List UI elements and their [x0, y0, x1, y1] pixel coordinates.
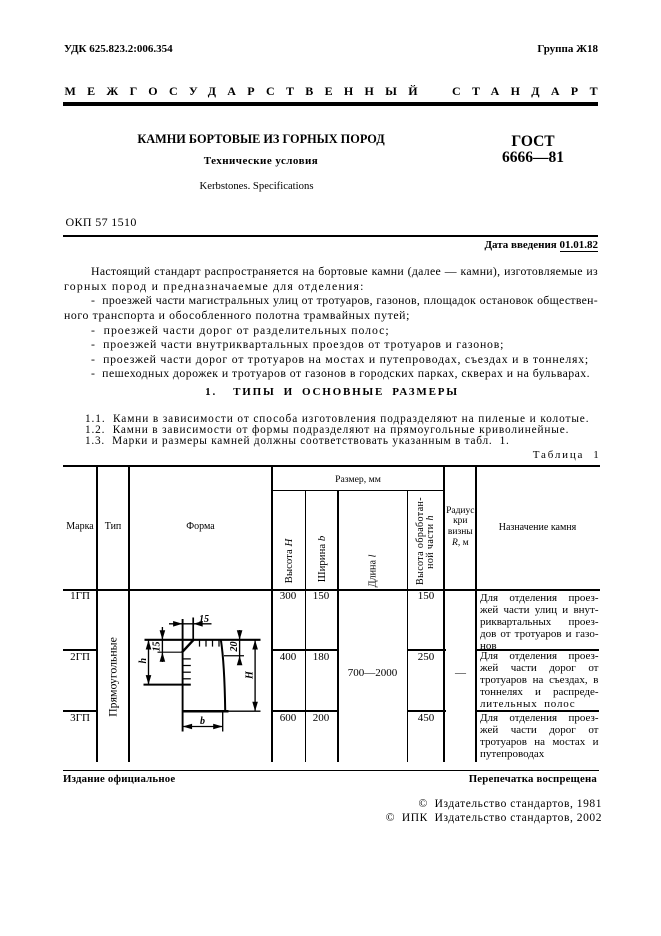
svg-text:20: 20: [229, 642, 240, 653]
svg-text:H: H: [245, 670, 256, 680]
svg-text:15: 15: [199, 614, 209, 625]
svg-text:h: h: [138, 658, 149, 664]
svg-text:b: b: [200, 716, 205, 727]
svg-text:15: 15: [152, 642, 163, 652]
